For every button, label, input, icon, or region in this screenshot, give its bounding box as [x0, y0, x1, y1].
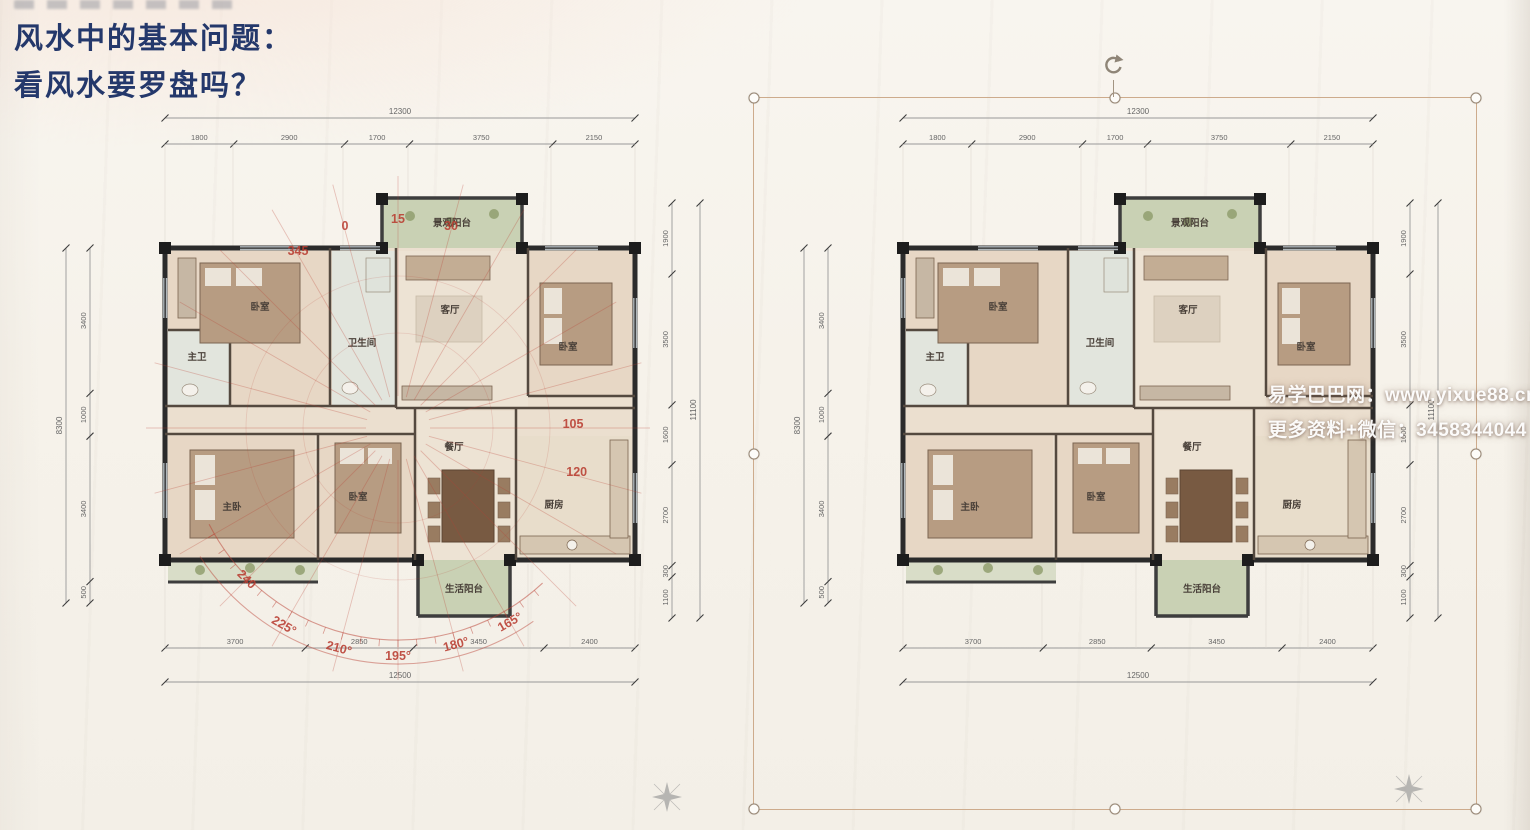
compass-degree-label: 105 — [563, 417, 584, 431]
dimension-value: 3400 — [79, 501, 88, 518]
north-star-compass-icon — [1392, 772, 1426, 806]
compass-degree-label: 15 — [391, 212, 405, 226]
dimension-value: 3750 — [473, 133, 490, 142]
room-label: 卧室 — [558, 341, 578, 353]
dimension-value: 2150 — [586, 133, 603, 142]
room-label: 卧室 — [250, 301, 270, 313]
dimension-value: 2400 — [581, 637, 598, 646]
dimension-value: 2700 — [661, 507, 670, 524]
dimension-value: 3400 — [79, 312, 88, 329]
north-star-compass-icon — [650, 780, 684, 814]
rotate-handle-stem — [1113, 80, 1114, 97]
compass-degree-label: 0 — [341, 219, 348, 233]
dimension-value: 1100 — [661, 589, 670, 605]
room-label: 生活阳台 — [445, 583, 484, 595]
compass-degree-label: 345 — [288, 244, 309, 258]
selection-handle-bottom-right[interactable] — [1471, 804, 1482, 815]
dimension-value: 2850 — [351, 637, 368, 646]
compass-degree-label: 210° — [325, 638, 354, 658]
dimension-value: 1900 — [661, 230, 670, 247]
room-label: 主卧 — [222, 501, 242, 513]
compass-degree-label: 195° — [385, 649, 411, 663]
dimension-total: 8300 — [55, 416, 64, 434]
dimension-value: 1800 — [191, 133, 208, 142]
page-title: 风水中的基本问题： 看风水要罗盘吗？ — [14, 16, 293, 110]
room-label: 厨房 — [544, 499, 563, 511]
dimension-total: 11100 — [689, 399, 698, 421]
compass-degree-label: 180° — [442, 634, 471, 654]
dimension-value: 3450 — [470, 637, 487, 646]
rotate-arrow-icon[interactable] — [1100, 52, 1126, 80]
floor-plan-with-compass[interactable]: 1230018002900170037502150370028503450240… — [50, 98, 720, 743]
selection-handle-bottom-left[interactable] — [749, 804, 760, 815]
watermark-contact: 更多资料+微信：3458344044 — [1268, 415, 1527, 442]
dimension-value: 1600 — [661, 426, 670, 443]
dimension-value: 500 — [79, 586, 88, 599]
dimension-value: 1700 — [369, 133, 386, 142]
selection-handle-mid-left[interactable] — [749, 448, 760, 459]
selection-handle-top-right[interactable] — [1471, 93, 1482, 104]
dimension-value: 300 — [661, 565, 670, 578]
selection-handle-mid-right[interactable] — [1471, 448, 1482, 459]
cropped-top-artifact — [14, 0, 242, 9]
selection-handle-bottom-center[interactable] — [1110, 804, 1121, 815]
selection-handle-top-left[interactable] — [749, 93, 760, 104]
watermark-site: 易学巴巴网：www.yixue88.cn — [1268, 380, 1530, 407]
room-label: 主卫 — [187, 351, 207, 363]
dimension-total: 12500 — [389, 671, 412, 680]
floor-plan-with-compass-svg: 1230018002900170037502150370028503450240… — [50, 98, 720, 743]
dimension-value: 3700 — [227, 637, 244, 646]
dimension-value: 3500 — [661, 331, 670, 348]
compass-degree-label: 30 — [444, 219, 458, 233]
room-label: 客厅 — [439, 304, 460, 316]
dimension-value: 1000 — [79, 406, 88, 423]
selection-box[interactable] — [753, 97, 1477, 810]
dimension-total: 12300 — [389, 107, 412, 116]
dimension-value: 2900 — [281, 133, 298, 142]
rotate-handle[interactable] — [1100, 52, 1126, 98]
title-line-1: 风水中的基本问题： — [14, 16, 293, 63]
compass-degree-label: 120 — [566, 465, 587, 479]
room-label: 卫生间 — [348, 337, 377, 349]
